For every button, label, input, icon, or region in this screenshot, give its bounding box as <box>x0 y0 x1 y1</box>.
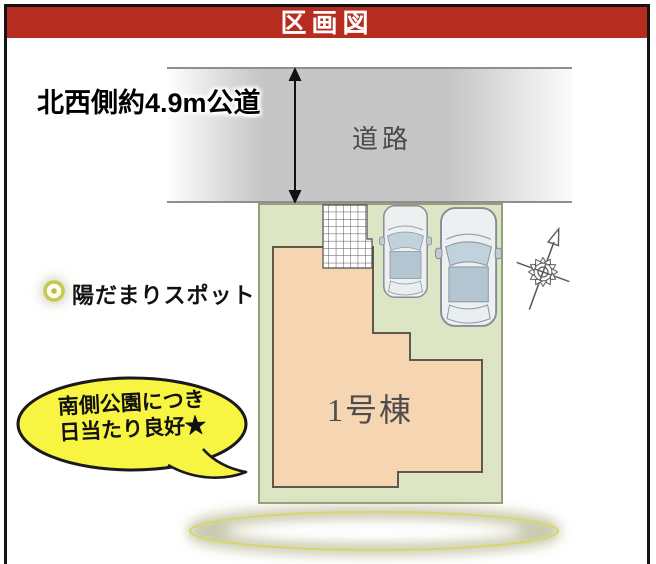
compass-icon <box>503 219 585 319</box>
road-label: 道路 <box>352 119 412 156</box>
title-banner: 区画図 <box>7 7 647 38</box>
double-headed-arrow-icon <box>283 67 307 204</box>
plot-plan-page: 区画図 道路 北西側約4.9m公道 <box>0 0 656 564</box>
sun-spot-label: 陽だまりスポット <box>72 278 256 310</box>
sun-spot-icon <box>41 278 67 304</box>
building-label: 1号棟 <box>318 385 422 431</box>
road-dimension-label: 北西側約4.9m公道 <box>37 81 261 120</box>
park-highlight-ellipse <box>190 512 558 550</box>
page-title: 区画図 <box>280 10 373 36</box>
lot-area <box>258 203 503 504</box>
callout-text: 南側公園につき 日当たり良好★ <box>27 386 237 449</box>
